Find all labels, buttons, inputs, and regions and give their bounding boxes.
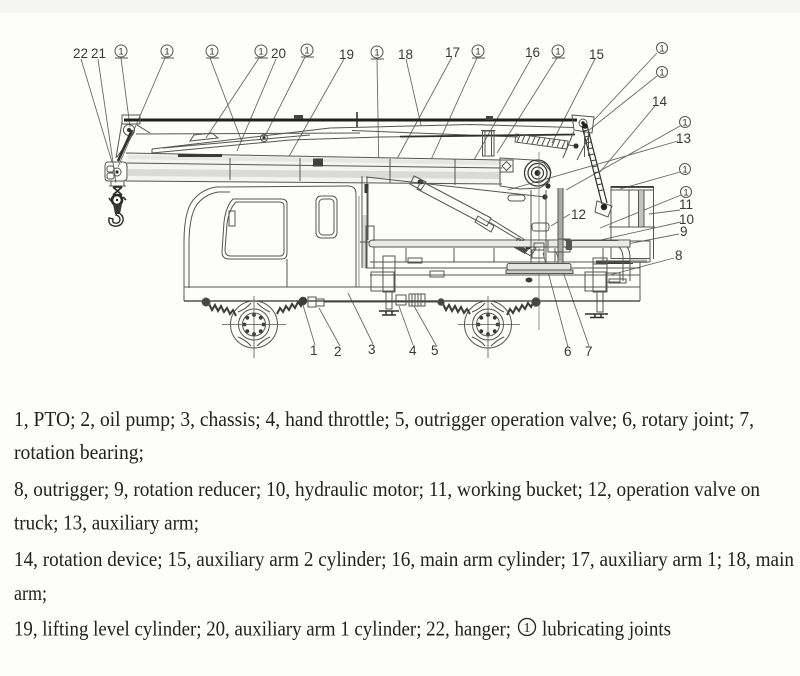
- svg-text:13: 13: [676, 131, 691, 146]
- svg-text:20: 20: [271, 46, 286, 61]
- svg-text:21: 21: [91, 46, 106, 61]
- svg-text:17: 17: [445, 45, 460, 60]
- svg-text:18: 18: [398, 47, 413, 62]
- svg-text:1: 1: [524, 621, 531, 636]
- svg-text:arm;: arm;: [14, 581, 47, 605]
- svg-text:15: 15: [589, 47, 604, 62]
- svg-text:2: 2: [334, 344, 342, 359]
- svg-text:5: 5: [431, 343, 439, 358]
- svg-text:rotation bearing;: rotation bearing;: [14, 440, 144, 464]
- svg-text:9: 9: [680, 224, 688, 239]
- svg-text:truck; 13, auxiliary arm;: truck; 13, auxiliary arm;: [14, 511, 199, 535]
- svg-text:8: 8: [675, 248, 683, 263]
- svg-text:14: 14: [652, 94, 668, 109]
- svg-text:1: 1: [310, 343, 318, 358]
- svg-text:22: 22: [73, 46, 88, 61]
- svg-text:6: 6: [564, 344, 572, 359]
- svg-text:1, PTO; 2, oil pump; 3, chassi: 1, PTO; 2, oil pump; 3, chassis; 4, hand…: [14, 407, 754, 431]
- svg-text:19, lifting level cylinder; 20: 19, lifting level cylinder; 20, auxiliar…: [14, 617, 511, 641]
- svg-text:14, rotation device; 15, auxil: 14, rotation device; 15, auxiliary arm 2…: [14, 547, 794, 571]
- svg-text:12: 12: [571, 207, 586, 222]
- svg-text:7: 7: [585, 344, 593, 359]
- svg-text:11: 11: [679, 197, 693, 212]
- svg-text:3: 3: [368, 342, 376, 357]
- svg-text:16: 16: [525, 45, 540, 60]
- svg-text:19: 19: [339, 47, 354, 62]
- svg-text:8, outrigger; 9, rotation redu: 8, outrigger; 9, rotation reducer; 10, h…: [14, 477, 760, 501]
- svg-text:lubricating joints: lubricating joints: [542, 617, 671, 641]
- svg-text:4: 4: [409, 343, 417, 358]
